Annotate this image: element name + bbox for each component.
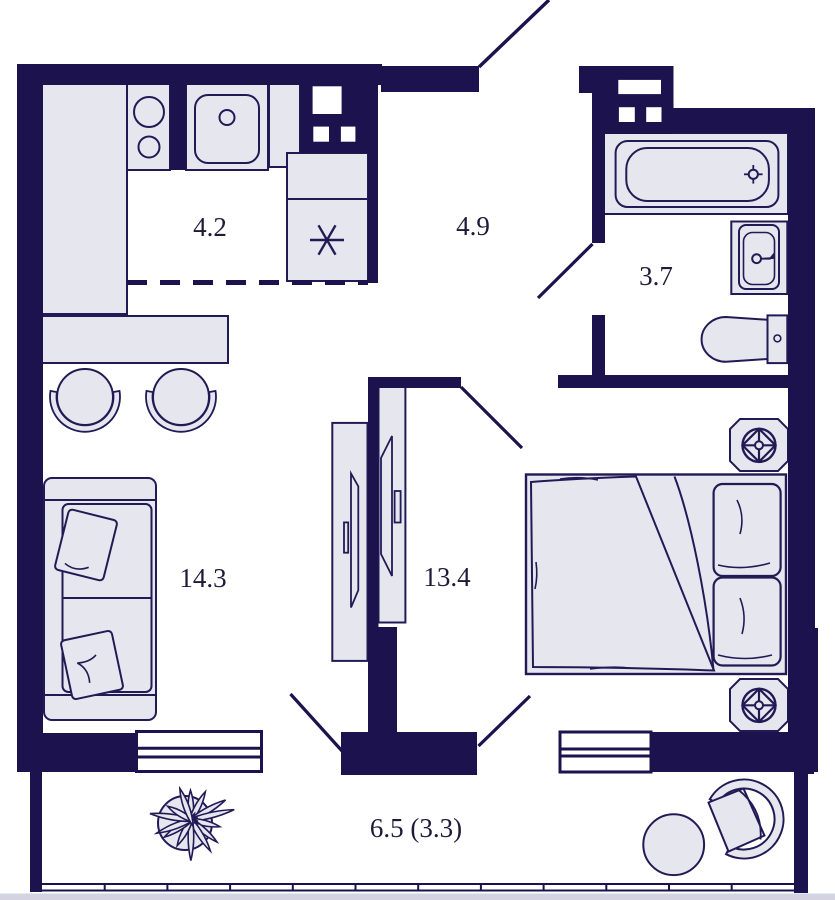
svg-text:4.2: 4.2 <box>193 212 227 242</box>
svg-text:3.7: 3.7 <box>639 261 673 291</box>
svg-text:6.5 (3.3): 6.5 (3.3) <box>370 813 462 843</box>
svg-text:14.3: 14.3 <box>179 563 226 593</box>
svg-text:4.9: 4.9 <box>456 211 490 241</box>
svg-text:13.4: 13.4 <box>423 562 471 592</box>
